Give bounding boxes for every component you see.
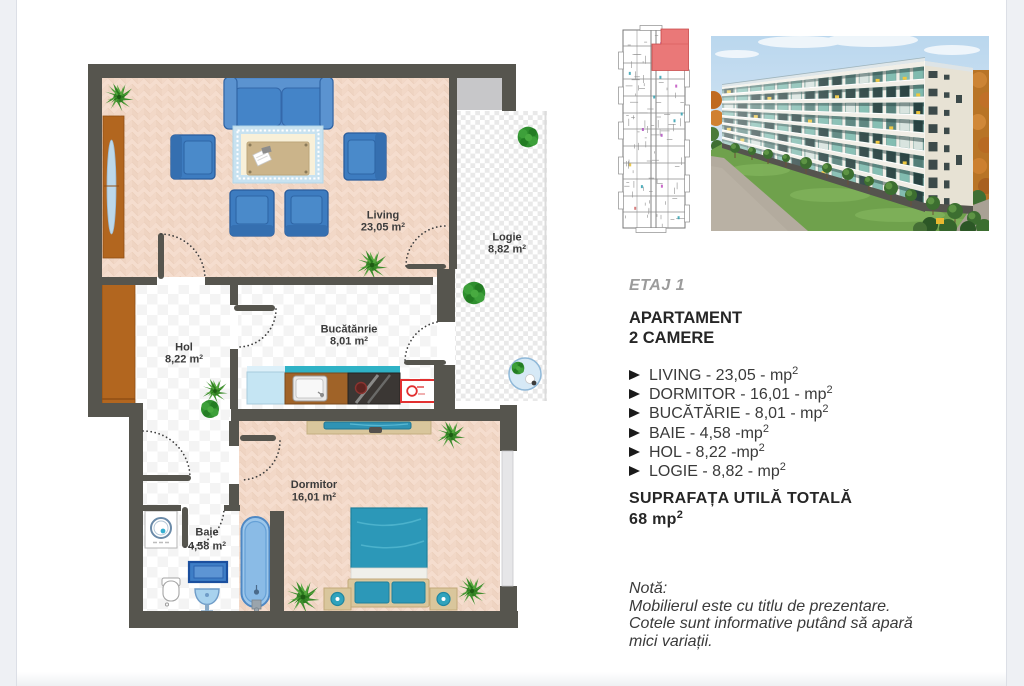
svg-text:8,22 m2: 8,22 m2: [165, 354, 203, 366]
svg-text:Living: Living: [367, 210, 399, 222]
svg-text:8,82 m2: 8,82 m2: [488, 244, 526, 256]
svg-text:Bucătănrie: Bucătănrie: [321, 324, 378, 336]
svg-text:16,01 m2: 16,01 m2: [292, 492, 336, 504]
svg-text:Logie: Logie: [492, 232, 521, 244]
svg-text:4,58 m2: 4,58 m2: [188, 541, 226, 553]
svg-text:8,01 m2: 8,01 m2: [330, 336, 368, 348]
svg-text:23,05 m2: 23,05 m2: [361, 222, 405, 234]
svg-text:Baie: Baie: [195, 527, 218, 539]
svg-text:Dormitor: Dormitor: [291, 479, 338, 491]
svg-text:Hol: Hol: [175, 342, 193, 354]
